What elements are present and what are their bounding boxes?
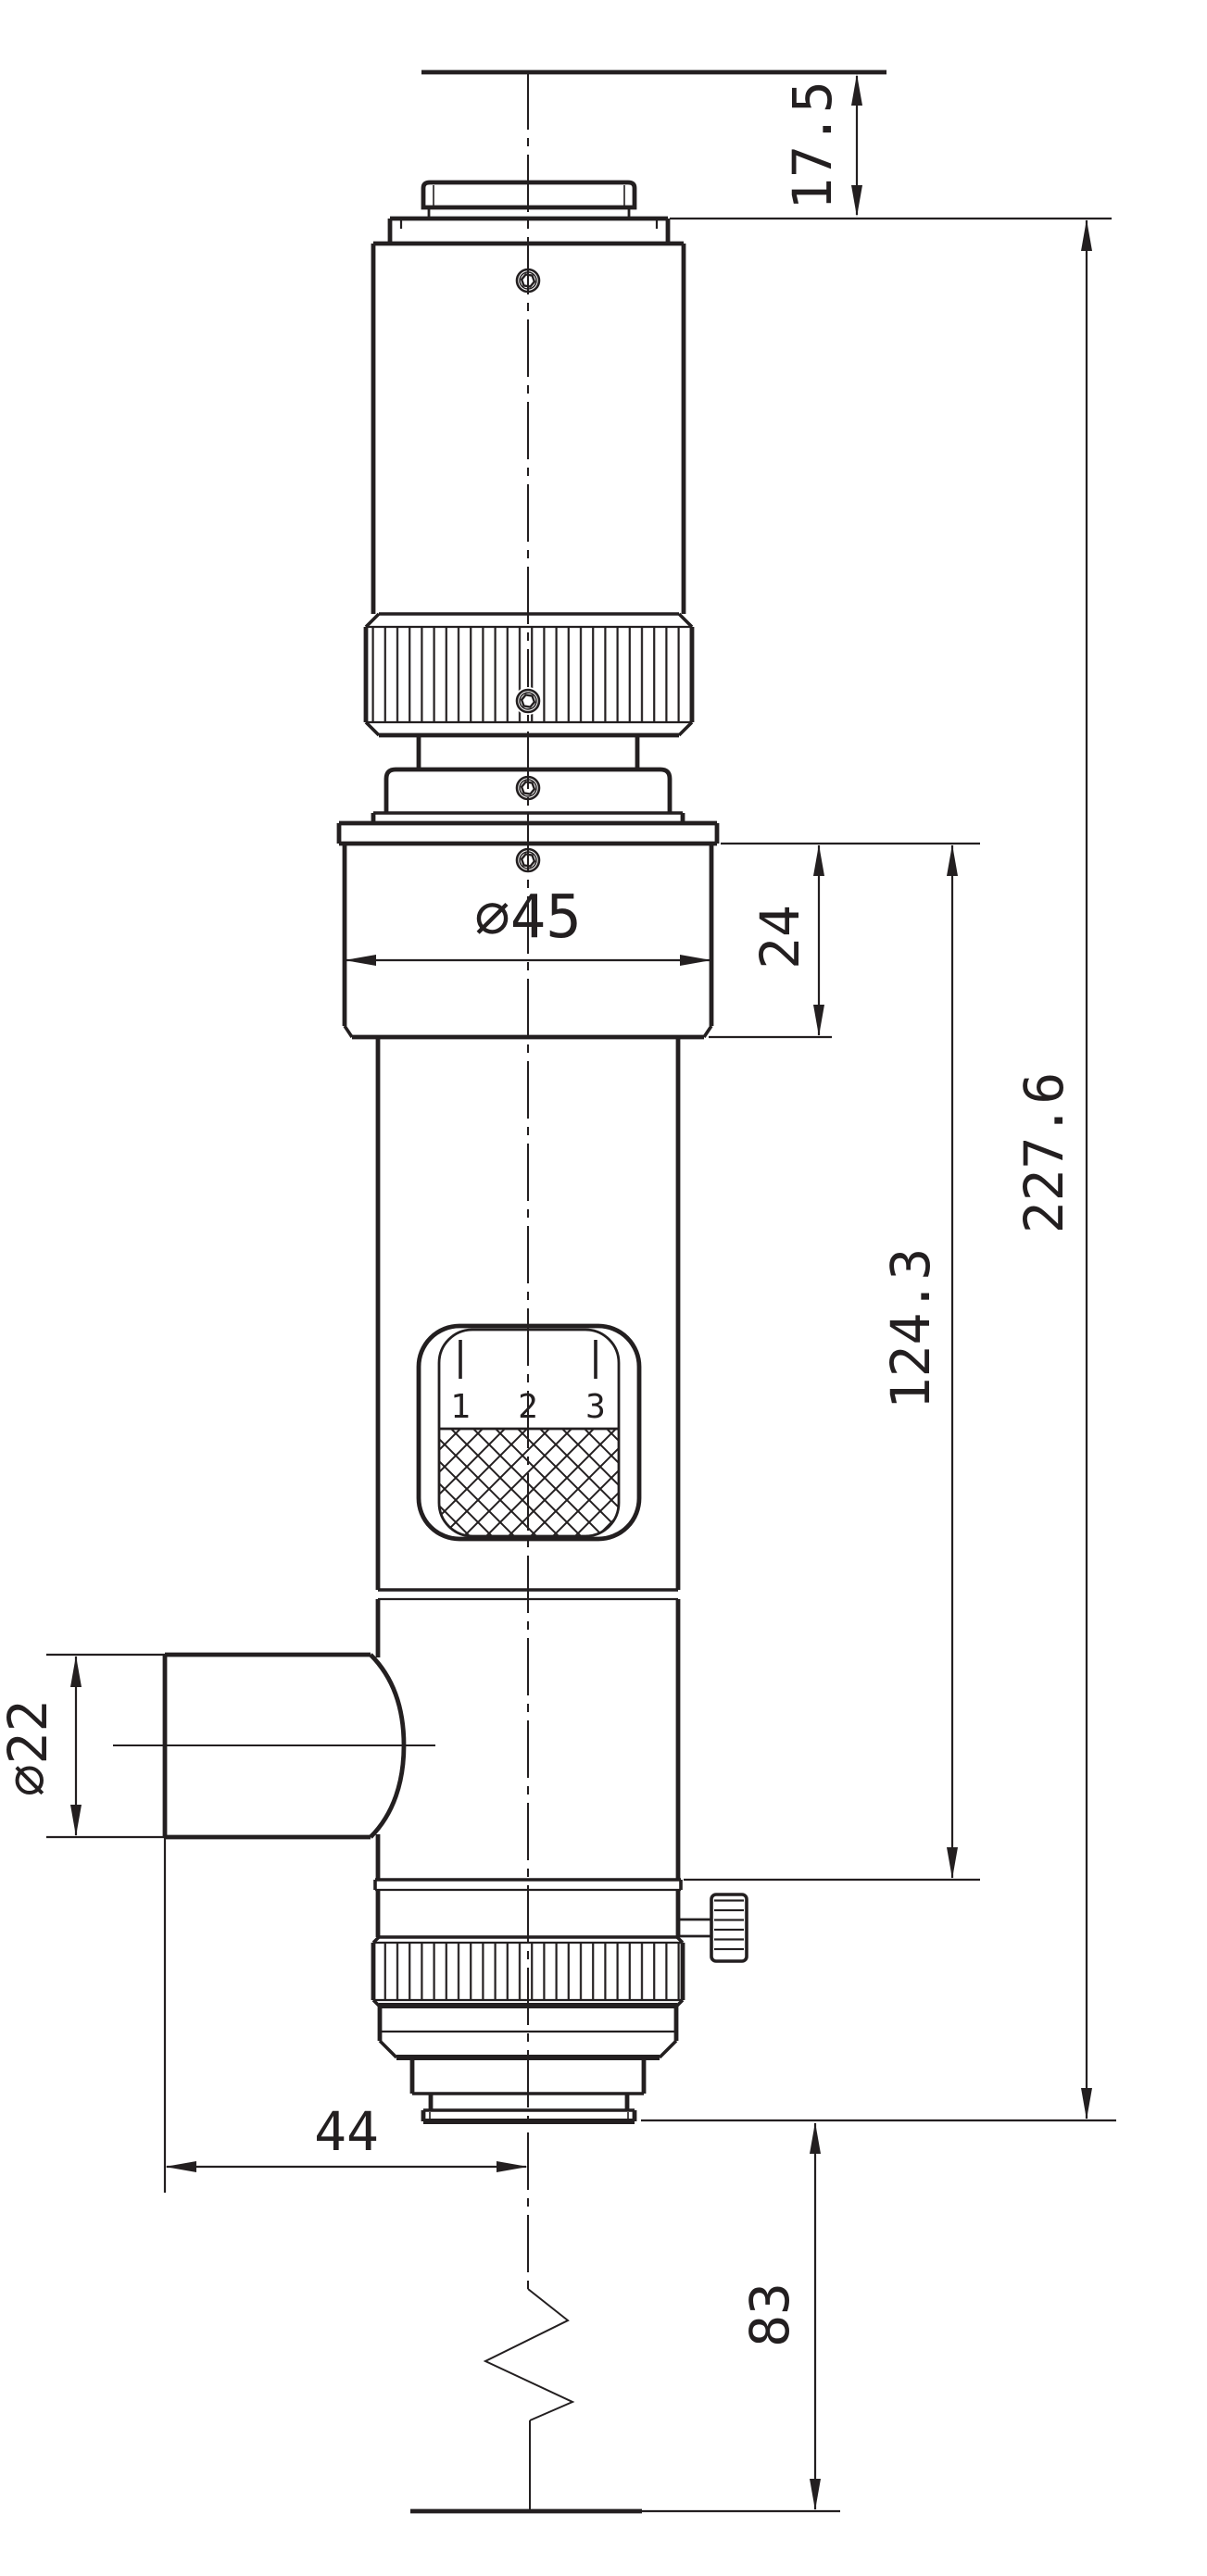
body45-chamfer-right (704, 1026, 711, 1037)
dim-text-d45: ∅45 (474, 883, 582, 952)
scale-label-3: 3 (585, 1388, 606, 1426)
drawing-canvas: 17.5 24 124.3 227.6 ∅45 ∅22 44 83 1 2 3 (0, 0, 1207, 2576)
body45-chamfer-left (345, 1026, 352, 1037)
dim-text-44: 44 (314, 2100, 379, 2163)
knurl-ring1-chamfer-bl (366, 722, 379, 735)
knurl-ring1-chamfer-tr (679, 614, 692, 627)
dim-text-24: 24 (748, 905, 811, 969)
thumbwheel-knurl-texture (439, 1429, 619, 1536)
bottom-chamfer-right (660, 2041, 676, 2057)
scale-label-2: 2 (518, 1388, 538, 1426)
thumbscrew-knurl-texture (714, 1898, 744, 1957)
dimension-annotations (46, 74, 1116, 2511)
bottom-chamfer-left (380, 2041, 396, 2057)
knurl-ring1-chamfer-tl (366, 614, 379, 627)
knurl-ring2-texture (373, 1943, 683, 2000)
dim-text-d22: ∅22 (0, 1700, 59, 1797)
scale-label-1: 1 (450, 1388, 471, 1426)
part-outline (165, 72, 886, 2511)
dim-text-17-5: 17.5 (781, 81, 844, 210)
break-zigzag-symbol (485, 2289, 572, 2420)
knurl-ring1-chamfer-br (679, 722, 692, 735)
set-screw-ring (514, 687, 542, 715)
dim-text-124-3: 124.3 (879, 1248, 942, 1410)
dim-text-83: 83 (738, 2282, 801, 2347)
technical-drawing-page: 17.5 24 124.3 227.6 ∅45 ∅22 44 83 1 2 3 (0, 0, 1207, 2576)
dim-text-227-6: 227.6 (1012, 1072, 1075, 1234)
